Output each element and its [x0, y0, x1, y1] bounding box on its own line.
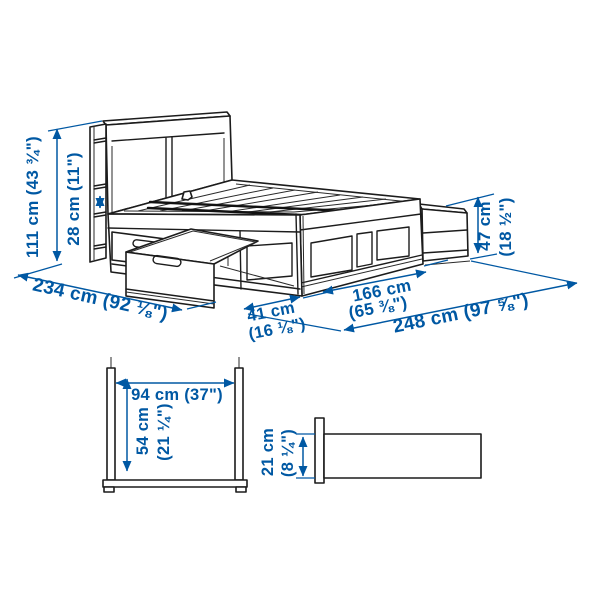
label-drawer-inner-depth-in: (21 ¼") — [155, 403, 173, 461]
label-footboard-height-in: (18 ½") — [496, 197, 515, 256]
label-drawer-inner-depth-cm: 54 cm — [134, 407, 152, 455]
side-profile-diagram — [296, 418, 481, 483]
dimension-diagram: 111 cm (43 ¾") 28 cm (11") 234 cm (92 ⅛"… — [0, 0, 600, 600]
label-base-height-cm: 21 cm — [259, 428, 277, 476]
bed-drawing — [90, 112, 470, 308]
diagram-canvas: 111 cm (43 ¾") 28 cm (11") 234 cm (92 ⅛"… — [0, 0, 600, 600]
label-drawer-inner-width: 94 cm (37") — [131, 386, 223, 404]
label-total-clearance-width: 248 cm (97 ⅝") — [391, 290, 530, 338]
label-total-height: 111 cm (43 ¾") — [23, 136, 42, 258]
slat-bracket — [182, 191, 192, 200]
label-base-height-in: (8 ¼") — [279, 429, 297, 477]
far-side-drawer — [419, 204, 470, 265]
headboard-shelf-unit — [90, 124, 106, 262]
drawer-inner-diagram — [103, 357, 247, 492]
label-headboard-depth: 28 cm (11") — [64, 152, 83, 246]
label-footboard-height-cm: 47 cm — [475, 201, 494, 251]
